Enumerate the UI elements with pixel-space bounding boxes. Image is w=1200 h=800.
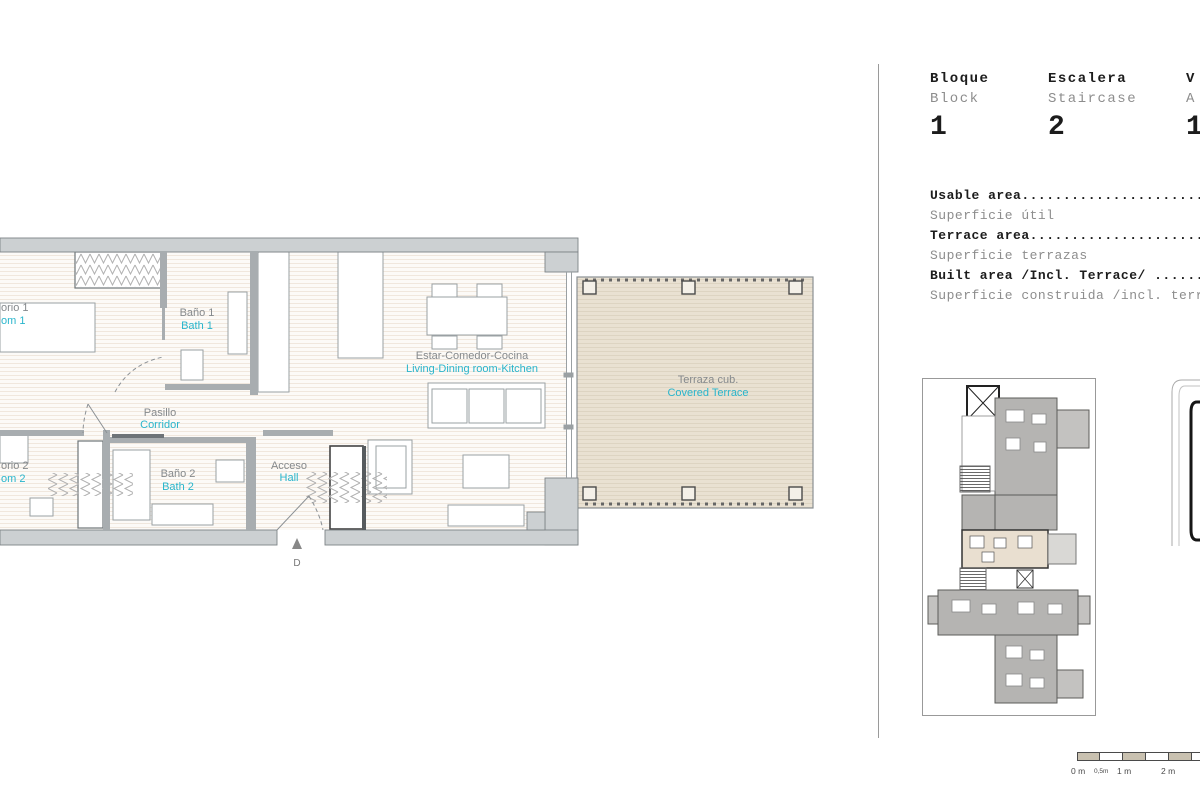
- room-label: orio 2: [1, 460, 29, 472]
- room-label: Covered Terrace: [667, 387, 748, 399]
- entrance-marker: D: [292, 538, 302, 569]
- toilet-1: [181, 350, 203, 380]
- room-label: Living-Dining room-Kitchen: [406, 363, 538, 375]
- block-label-en: Block: [930, 91, 989, 107]
- bed-2: [0, 433, 28, 463]
- panel-divider: [878, 64, 879, 738]
- sideboard: [448, 505, 524, 526]
- hall-closet-hatch: [306, 472, 387, 503]
- dining-chair: [432, 284, 457, 297]
- sofa-cushion: [432, 389, 467, 423]
- usable-area-sub: Superficie útil: [930, 206, 1200, 226]
- block-number: 1: [930, 112, 989, 143]
- area-table: Usable area.............................…: [930, 186, 1200, 306]
- staircase-number: 2: [1048, 112, 1137, 143]
- room-label: Estar-Comedor-Cocina: [416, 350, 529, 362]
- terrace-area-sub: Superficie terrazas: [930, 246, 1200, 266]
- site-outline-outer: [1172, 380, 1200, 546]
- vanity-1: [228, 292, 247, 354]
- scale-label-0m: 0 m: [1071, 766, 1085, 776]
- room-label: Baño 1: [180, 307, 215, 319]
- dining-table: [427, 297, 507, 335]
- apartment-label-en: A: [1186, 91, 1200, 107]
- kitchen-counter: [338, 252, 383, 358]
- scale-segment: [1192, 752, 1200, 761]
- bathtub-2: [152, 504, 213, 525]
- apartment-number: 1: [1186, 112, 1200, 143]
- terrace-area-label: Terrace area............................…: [930, 226, 1200, 246]
- room-label: Pasillo: [144, 407, 176, 419]
- entrance-label: D: [293, 558, 300, 569]
- key-plan-stairs-upper: [960, 466, 990, 492]
- room-label: Hall: [280, 472, 299, 484]
- dining-chair: [477, 284, 502, 297]
- staircase-label-es: Escalera: [1048, 71, 1137, 87]
- key-plan: [922, 378, 1096, 716]
- block-label-es: Bloque: [930, 71, 989, 87]
- key-plan-unit-terrace: [1048, 534, 1076, 564]
- key-plan-stairs-lower: [960, 568, 986, 590]
- scale-segment: [1123, 752, 1146, 761]
- coffee-table: [463, 455, 509, 488]
- room-label: Bath 2: [162, 481, 194, 493]
- block-column: Bloque Block 1: [930, 71, 989, 143]
- site-outline-inner: [1191, 402, 1200, 540]
- apartment-column: V A 1: [1186, 71, 1200, 143]
- room-label: Acceso: [271, 460, 307, 472]
- sofa-cushion: [506, 389, 541, 423]
- room-label: Terraza cub.: [678, 374, 739, 386]
- sink-2: [216, 460, 244, 482]
- wardrobe-1-hatch: [76, 253, 161, 287]
- scale-segment: [1146, 752, 1169, 761]
- dining-chair: [477, 336, 502, 349]
- built-area-label: Built area /Incl. Terrace/ .............…: [930, 266, 1200, 286]
- scale-label-2m: 2 m: [1161, 766, 1175, 776]
- floor-plan: D orio 1 om 1 Baño 1 Bath 1 Pasillo Corr…: [0, 0, 880, 800]
- built-area-sub: Superficie construida /incl. terrazas/: [930, 286, 1200, 306]
- scale-label-05m: 0,5m: [1094, 768, 1108, 775]
- scale-label-1m: 1 m: [1117, 766, 1131, 776]
- usable-area-label: Usable area.............................…: [930, 186, 1200, 206]
- wardrobe-2-hatch: [48, 473, 133, 496]
- room-label: orio 1: [1, 302, 29, 314]
- scale-segment: [1169, 752, 1192, 761]
- room-label: Baño 2: [161, 468, 196, 480]
- room-label: Corridor: [140, 419, 180, 431]
- scale-segment: [1100, 752, 1123, 761]
- room-label: Bath 1: [181, 320, 213, 332]
- kitchen-cabinets: [258, 252, 289, 392]
- scale-bar: [1077, 752, 1200, 761]
- scale-segment: [1077, 752, 1100, 761]
- sofa-cushion: [469, 389, 504, 423]
- apartment-label-es: V: [1186, 71, 1200, 87]
- entrance-arrow-icon: [292, 538, 302, 549]
- site-outline-partial: [1158, 370, 1200, 550]
- dining-chair: [432, 336, 457, 349]
- room-label: om 1: [1, 315, 25, 327]
- room-label: om 2: [1, 473, 25, 485]
- staircase-column: Escalera Staircase 2: [1048, 71, 1137, 143]
- nightstand-2: [30, 498, 53, 516]
- staircase-label-en: Staircase: [1048, 91, 1137, 107]
